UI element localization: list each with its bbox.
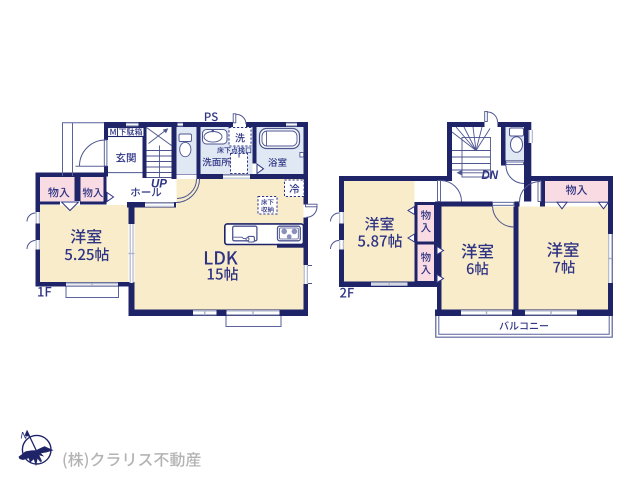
svg-text:N: N <box>21 431 28 442</box>
svg-text:UP: UP <box>151 179 167 191</box>
svg-text:DN: DN <box>482 170 499 182</box>
